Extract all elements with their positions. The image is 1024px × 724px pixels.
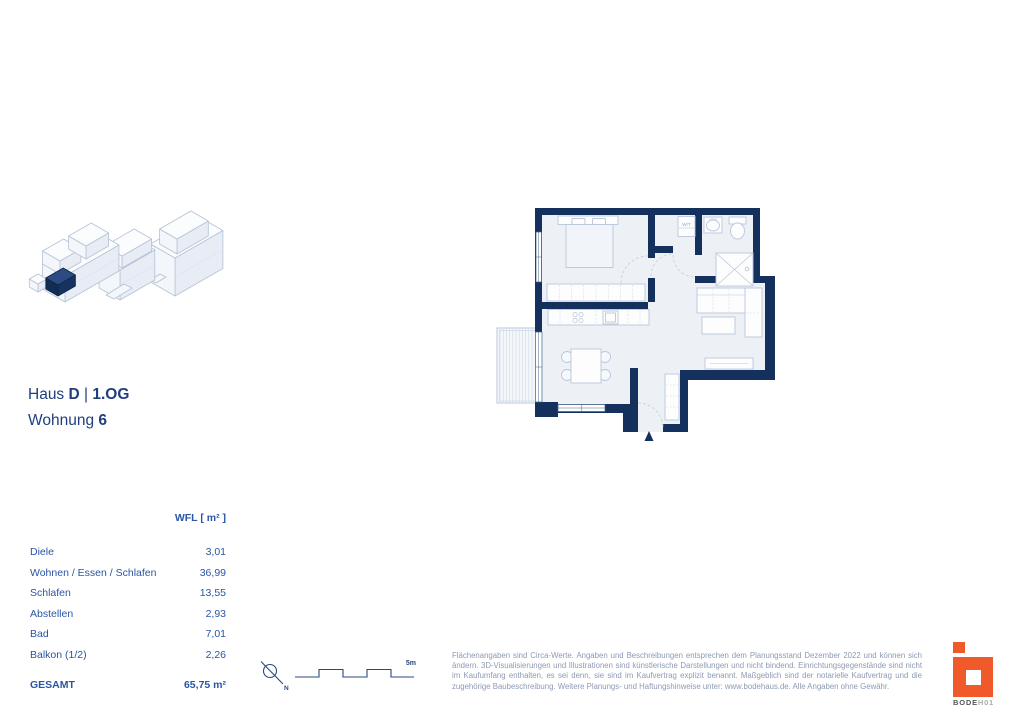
living-room-window <box>558 405 605 412</box>
toilet <box>729 217 746 239</box>
building-right <box>151 211 223 296</box>
logo-word-primary: BODE <box>953 698 978 707</box>
shower <box>716 253 753 286</box>
floorplan-sheet: Haus D | 1.OG Wohnung 6 <box>0 0 1024 724</box>
north-label: N <box>284 685 289 692</box>
area-table: WFL [ m² ] Diele 3,01 Wohnen / Essen / S… <box>30 512 226 691</box>
room-area: 2,26 <box>206 649 226 670</box>
room-area: 3,01 <box>206 546 226 567</box>
page-title: Haus D | 1.OG Wohnung 6 <box>28 382 129 434</box>
logo-inner-square <box>966 670 981 685</box>
total-label: GESAMT <box>30 679 75 691</box>
table-row: Diele 3,01 <box>30 546 226 567</box>
table-row: Balkon (1/2) 2,26 <box>30 649 226 670</box>
coffee-table <box>702 317 735 334</box>
table-total-row: GESAMT 65,75 m² <box>30 679 226 691</box>
floor-plan: W/T <box>488 198 778 448</box>
title-line-house: Haus D | 1.OG <box>28 382 129 408</box>
area-table-header: WFL [ m² ] <box>30 512 226 546</box>
table-row: Schlafen 13,55 <box>30 587 226 608</box>
table-row: Abstellen 2,93 <box>30 608 226 629</box>
bedroom-wardrobe <box>547 284 645 301</box>
kitchen-counter <box>548 310 649 326</box>
title-line-unit: Wohnung 6 <box>28 408 129 434</box>
bed <box>558 216 618 268</box>
buildings-isometric-illustration <box>10 180 240 320</box>
room-label: Diele <box>30 546 54 567</box>
floor-label: 1.OG <box>92 386 129 403</box>
table-row: Wohnen / Essen / Schlafen 36,99 <box>30 567 226 588</box>
room-label: Bad <box>30 628 49 649</box>
sideboard <box>705 358 753 369</box>
kitchen-sink <box>603 311 618 324</box>
washer-dryer-label: W/T <box>682 222 691 227</box>
room-area: 13,55 <box>200 587 226 608</box>
balcony-door-window <box>536 332 543 402</box>
balcony <box>497 328 541 403</box>
logo-word-secondary: H01 <box>978 698 994 707</box>
entry-cabinet <box>665 374 679 420</box>
north-indicator-icon <box>261 662 283 685</box>
room-area: 36,99 <box>200 567 226 588</box>
unit-number: 6 <box>98 412 107 429</box>
room-area: 2,93 <box>206 608 226 629</box>
bathroom-sink <box>704 217 722 233</box>
room-label: Abstellen <box>30 608 73 629</box>
room-label: Balkon (1/2) <box>30 649 87 670</box>
entrance-arrow-icon <box>645 431 654 441</box>
logo-dot-square <box>953 642 965 653</box>
room-label: Wohnen / Essen / Schlafen <box>30 567 156 588</box>
north-and-scale: N 5m <box>256 650 431 695</box>
legal-disclaimer: Flächenangaben sind Circa-Werte. Angaben… <box>452 651 922 692</box>
logo-wordmark: BODEH01 <box>953 698 994 707</box>
scale-bar <box>295 670 414 678</box>
house-id: D <box>69 386 80 403</box>
bedroom-window <box>536 232 542 282</box>
room-label: Schlafen <box>30 587 71 608</box>
total-area: 65,75 m² <box>184 679 226 691</box>
room-area: 7,01 <box>206 628 226 649</box>
scale-length-label: 5m <box>406 660 416 667</box>
table-row: Bad 7,01 <box>30 628 226 649</box>
